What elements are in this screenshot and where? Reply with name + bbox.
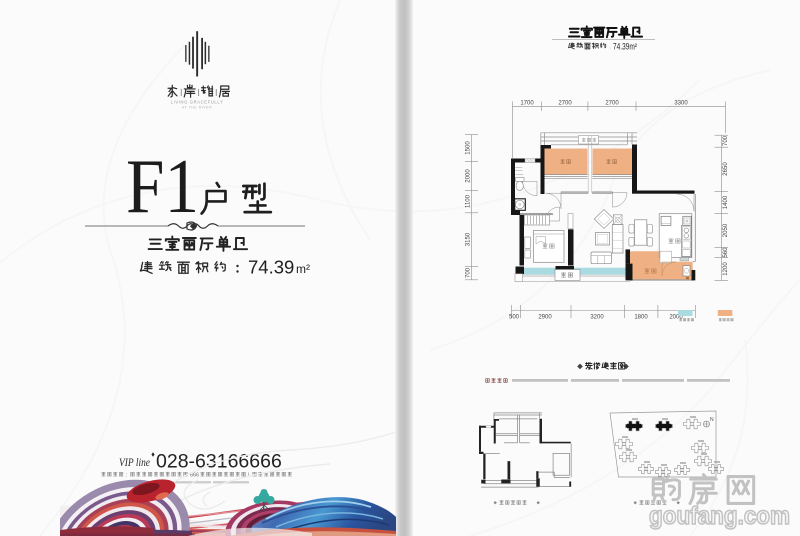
svg-text:700: 700 <box>466 267 472 278</box>
svg-text:2000: 2000 <box>466 169 472 183</box>
svg-text:2050: 2050 <box>723 223 729 237</box>
svg-text:goufang.com: goufang.com <box>649 502 790 530</box>
svg-text:74.39m²: 74.39m² <box>613 42 637 52</box>
svg-text:3150: 3150 <box>466 232 472 246</box>
svg-text:1400: 1400 <box>723 195 729 209</box>
svg-text:VIP line: VIP line <box>119 455 151 469</box>
svg-text:N: N <box>710 417 714 423</box>
svg-text:AT THE RIVER: AT THE RIVER <box>182 106 212 110</box>
svg-text:1500: 1500 <box>466 141 472 155</box>
svg-text:2900: 2900 <box>538 315 552 321</box>
svg-text:LIVING GRACEFULLY: LIVING GRACEFULLY <box>171 100 224 105</box>
svg-text:1700: 1700 <box>520 101 534 107</box>
svg-text:700: 700 <box>723 135 729 146</box>
svg-text:3300: 3300 <box>674 101 688 107</box>
svg-text:2700: 2700 <box>605 101 619 107</box>
svg-text:1200: 1200 <box>723 262 729 276</box>
svg-text:560: 560 <box>723 247 729 258</box>
svg-text::: : <box>126 472 127 478</box>
svg-text:500: 500 <box>509 315 520 321</box>
svg-text:3200: 3200 <box>590 315 604 321</box>
svg-text:1100: 1100 <box>466 194 472 208</box>
svg-text:1800: 1800 <box>634 315 648 321</box>
svg-text:m²: m² <box>296 262 310 276</box>
svg-text::: : <box>610 45 611 50</box>
svg-text:F1: F1 <box>126 143 199 229</box>
svg-text:74.39: 74.39 <box>248 257 294 278</box>
svg-text:2650: 2650 <box>723 162 729 176</box>
svg-text:2700: 2700 <box>558 101 572 107</box>
